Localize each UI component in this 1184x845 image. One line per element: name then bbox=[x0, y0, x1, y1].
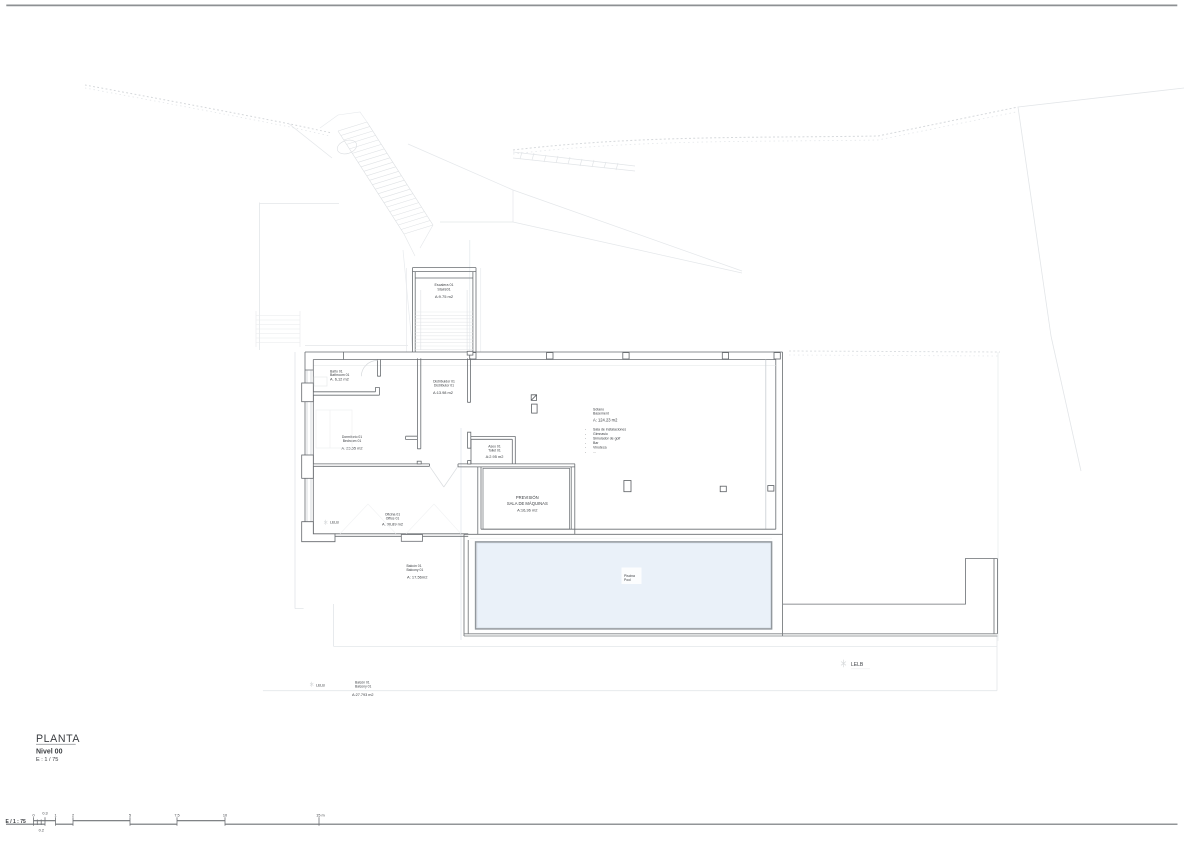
svg-text:A:16,36 m2: A:16,36 m2 bbox=[517, 508, 538, 513]
svg-text:SALA DE MÁQUINAS: SALA DE MÁQUINAS bbox=[507, 501, 548, 506]
svg-text:Nivel 00: Nivel 00 bbox=[36, 749, 63, 756]
svg-text:0: 0 bbox=[32, 813, 34, 817]
svg-text:Balcony 01: Balcony 01 bbox=[407, 568, 424, 572]
svg-text:Stairs01: Stairs01 bbox=[437, 288, 450, 292]
svg-text:Simulador de golf: Simulador de golf bbox=[593, 437, 620, 441]
svg-text:1: 1 bbox=[54, 813, 56, 817]
svg-text:0.2: 0.2 bbox=[39, 829, 44, 833]
svg-text:...: ... bbox=[593, 450, 596, 454]
svg-text:A: 124.23 m2: A: 124.23 m2 bbox=[593, 418, 618, 423]
svg-text:10: 10 bbox=[223, 813, 227, 817]
svg-text:Vinoteca: Vinoteca bbox=[593, 446, 607, 450]
svg-text:Gimnasio: Gimnasio bbox=[593, 432, 608, 436]
svg-text:A. 6,12 m2: A. 6,12 m2 bbox=[330, 377, 349, 382]
svg-text:2: 2 bbox=[72, 813, 74, 817]
svg-text:7.5: 7.5 bbox=[174, 813, 179, 817]
svg-text:5: 5 bbox=[129, 813, 131, 817]
svg-text:0.3: 0.3 bbox=[42, 812, 47, 816]
svg-text:A: 17,56m2: A: 17,56m2 bbox=[407, 574, 428, 579]
svg-text:PREVISIÓN: PREVISIÓN bbox=[516, 495, 539, 500]
svg-text:A:27.793 m2: A:27.793 m2 bbox=[352, 693, 374, 697]
svg-text:15 m: 15 m bbox=[316, 813, 324, 817]
svg-text:Distributor 01: Distributor 01 bbox=[434, 384, 454, 388]
svg-text:Toilet 01: Toilet 01 bbox=[488, 449, 501, 453]
svg-text:PLANTA: PLANTA bbox=[36, 733, 80, 745]
svg-text:Office 01: Office 01 bbox=[386, 517, 400, 521]
svg-text:A:2.95 m2: A:2.95 m2 bbox=[486, 454, 504, 459]
svg-text:Sala de instalaciones: Sala de instalaciones bbox=[593, 428, 626, 432]
svg-text:LELB: LELB bbox=[330, 521, 339, 525]
svg-text:LELB: LELB bbox=[316, 684, 325, 688]
svg-text:Pool: Pool bbox=[624, 578, 631, 582]
svg-text:Bar: Bar bbox=[593, 441, 599, 445]
svg-text:Escalera 01: Escalera 01 bbox=[435, 283, 454, 287]
svg-text:LELB: LELB bbox=[851, 662, 864, 668]
svg-text:Balcony 01: Balcony 01 bbox=[355, 685, 371, 689]
svg-text:A:9.75 m2: A:9.75 m2 bbox=[435, 294, 454, 299]
svg-text:E : 1 / 75: E : 1 / 75 bbox=[36, 757, 58, 763]
svg-text:Basement: Basement bbox=[593, 412, 609, 416]
svg-text:A:13.98 m2: A:13.98 m2 bbox=[433, 390, 453, 395]
